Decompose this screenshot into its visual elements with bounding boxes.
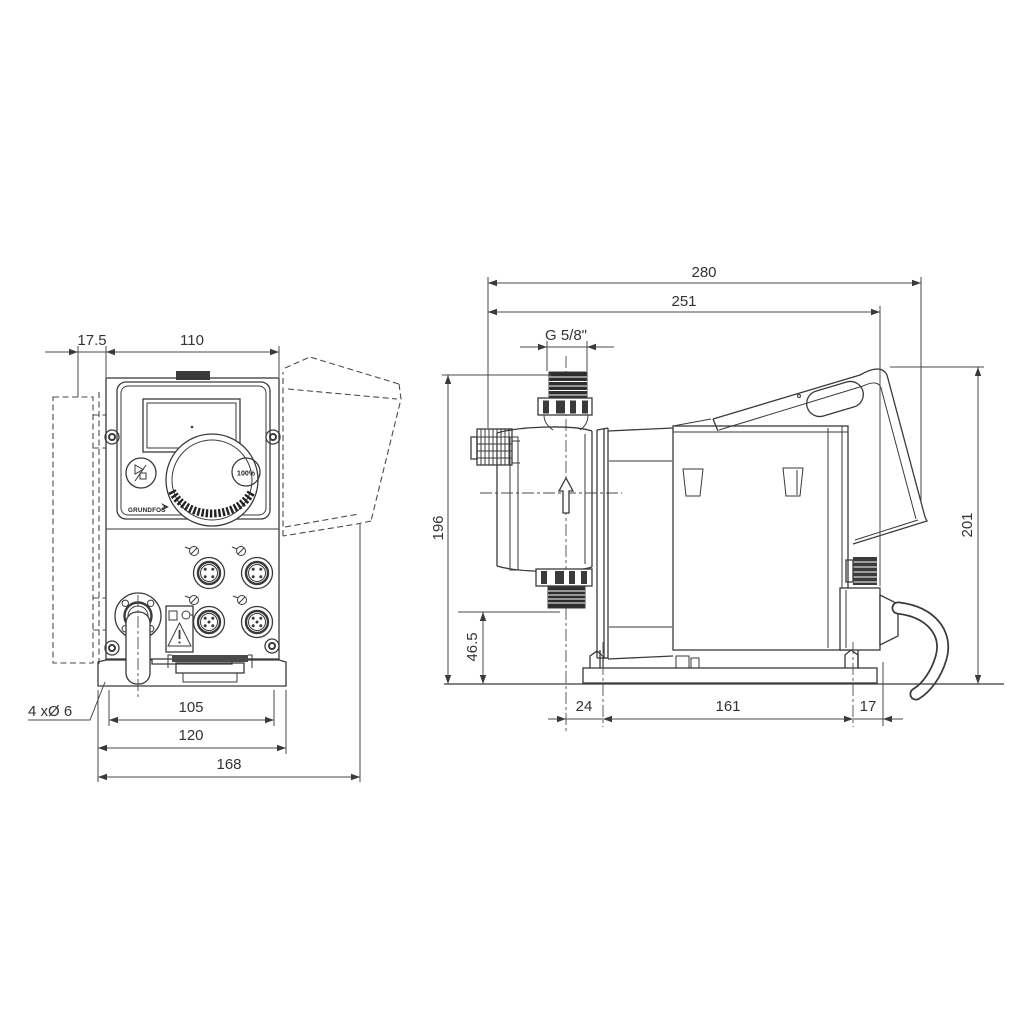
dim-total-width-label: 168 xyxy=(216,756,241,773)
logo-text: GRUNDFOS xyxy=(128,507,166,514)
dim-connection-thread-label: G 5/8" xyxy=(545,327,587,344)
flow-direction-arrow-icon xyxy=(559,478,573,513)
click-wheel-side xyxy=(804,378,867,419)
dim-housing-width-label: 110 xyxy=(180,332,204,349)
hole-note-label: 4 xØ 6 xyxy=(28,703,72,720)
bottom-latch xyxy=(168,655,252,682)
dim-suction-height-label: 46.5 xyxy=(464,632,481,661)
dim-base-hole-spacing-label: 161 xyxy=(715,698,740,715)
angled-cube-hidden xyxy=(283,357,401,536)
dim-base-rear-offset-label: 17 xyxy=(860,698,877,715)
dim-hole-spacing-label: 105 xyxy=(178,699,203,716)
technical-drawing-svg: 100% GRUNDFOS xyxy=(0,0,1024,1024)
capacity-button-label: 100% xyxy=(237,471,256,478)
discharge-union-nut xyxy=(538,398,592,415)
adapter-flange xyxy=(597,428,673,659)
connector-socket xyxy=(242,607,273,638)
dim-height-to-connection-label: 196 xyxy=(430,515,447,540)
click-wheel[interactable] xyxy=(166,434,258,526)
front-view: 100% GRUNDFOS xyxy=(28,332,401,782)
dim-total-height-label: 201 xyxy=(959,512,976,537)
dim-total-depth-label: 280 xyxy=(691,264,716,281)
suction-union-nut xyxy=(536,569,592,586)
deaeration-knob[interactable] xyxy=(471,429,512,465)
dim-body-depth-label: 251 xyxy=(671,293,696,310)
dim-wall-offset-label: 17.5 xyxy=(77,332,106,349)
rear-cable-gland xyxy=(840,557,943,694)
connector-socket xyxy=(194,607,225,638)
suction-thread xyxy=(548,587,585,608)
motor-housing xyxy=(673,419,848,650)
control-panel: 100% GRUNDFOS xyxy=(117,371,270,526)
dim-plate-width-label: 120 xyxy=(178,727,203,744)
dosing-pump-dimensional-drawing: 100% GRUNDFOS xyxy=(0,0,1024,1024)
side-view: 280 251 G 5/8" 196 46.5 xyxy=(430,264,1004,733)
dim-base-front-offset-label: 24 xyxy=(576,698,593,715)
wall-plate-hidden xyxy=(53,392,106,667)
discharge-thread xyxy=(549,372,587,399)
dosing-head xyxy=(471,372,592,608)
panel-top-tab xyxy=(176,371,210,380)
